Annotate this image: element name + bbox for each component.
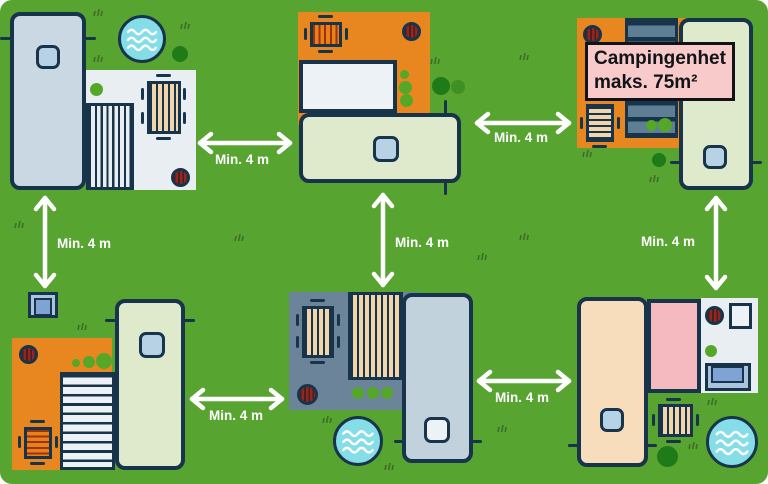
picnic-table-icon (147, 81, 181, 134)
distance-label: Min. 4 m (494, 130, 548, 145)
storage-box-inner (34, 298, 52, 316)
side-table-icon (729, 303, 752, 329)
grass-tuft-icon: ılı (497, 426, 508, 435)
caravan (10, 12, 86, 190)
wooden-deck (348, 292, 403, 380)
bush-icon (705, 345, 717, 357)
distance-label: Min. 4 m (57, 236, 111, 251)
fire-pit-icon (705, 306, 724, 325)
grass-tuft-icon: ılı (93, 10, 104, 19)
grass-tuft-icon: ılı (77, 324, 88, 333)
bush-icon (399, 81, 412, 94)
pool-icon (118, 15, 166, 63)
bush-icon (72, 359, 80, 367)
grass-tuft-icon: ılı (234, 235, 245, 244)
grass-tuft-icon: ılı (430, 58, 441, 67)
callout-label: Campingenhet maks. 75m² (585, 42, 735, 101)
caravan-hitch-mark (184, 319, 195, 322)
annex-tent (647, 299, 701, 393)
caravan-window (139, 332, 165, 358)
bush-icon (451, 80, 465, 94)
wooden-deck (86, 103, 134, 190)
callout-line2: maks. 75m² (594, 71, 726, 95)
distance-label: Min. 4 m (641, 234, 695, 249)
distance-label: Min. 4 m (395, 235, 449, 250)
distance-label: Min. 4 m (209, 408, 263, 423)
grass-tuft-icon: ılı (477, 254, 488, 263)
caravan-hitch-mark (647, 444, 657, 447)
picnic-table-icon (302, 306, 334, 358)
bush-icon (652, 153, 666, 167)
bush-icon (90, 83, 103, 96)
annex-tent (299, 60, 397, 113)
grass-tuft-icon: ılı (384, 464, 395, 473)
caravan-window (424, 417, 450, 443)
grass-tuft-icon: ılı (582, 151, 593, 160)
bush-icon (381, 387, 393, 399)
picnic-table-icon (658, 404, 693, 437)
callout-line1: Campingenhet (594, 47, 726, 71)
grass-tuft-icon: ılı (322, 417, 333, 426)
fire-pit-icon (19, 345, 38, 364)
grass-tuft-icon: ılı (519, 54, 530, 63)
bush-icon (657, 446, 678, 467)
caravan-hitch-mark (444, 100, 447, 114)
bush-icon (367, 387, 379, 399)
fire-pit-icon (171, 168, 190, 187)
grass-tuft-icon: ılı (14, 222, 25, 231)
distance-label: Min. 4 m (495, 390, 549, 405)
bush-icon (432, 77, 450, 95)
distance-arrow (370, 190, 396, 290)
caravan-hitch-mark (444, 181, 447, 195)
grass-tuft-icon: ılı (707, 399, 718, 408)
pool-icon (333, 416, 383, 466)
bush-icon (658, 118, 672, 132)
bush-icon (400, 94, 413, 107)
fire-pit-icon (402, 22, 421, 41)
grass-tuft-icon: ılı (519, 234, 530, 243)
caravan-window (36, 45, 60, 69)
distance-arrow (32, 193, 58, 291)
bush-icon (83, 356, 95, 368)
caravan-hitch-mark (472, 440, 482, 443)
lounge-furniture-inner (711, 366, 744, 383)
distance-arrow (703, 193, 729, 293)
bush-icon (646, 120, 657, 131)
distance-label: Min. 4 m (215, 152, 269, 167)
grass-tuft-icon: ılı (688, 443, 699, 452)
caravan-window (373, 136, 399, 162)
picnic-table-icon (310, 22, 342, 47)
wooden-deck (60, 372, 115, 470)
caravan-window (703, 145, 727, 169)
bush-icon (96, 353, 112, 369)
pool-icon (706, 416, 758, 468)
fire-pit-icon (297, 384, 318, 405)
caravan (577, 297, 648, 467)
picnic-table-icon (24, 427, 52, 459)
camping-units-spacing-diagram: ılı ılı ılı ılı ılı ılı ılı ılı ılı ılı … (0, 0, 768, 484)
picnic-table-icon (586, 104, 614, 142)
grass-tuft-icon: ılı (93, 56, 104, 65)
bush-icon (172, 46, 188, 62)
bush-icon (400, 70, 409, 79)
grass-tuft-icon: ılı (649, 176, 660, 185)
bush-icon (352, 387, 364, 399)
caravan-window (600, 408, 624, 432)
grass-tuft-icon: ılı (180, 23, 191, 32)
caravan-hitch-mark (752, 161, 762, 164)
caravan (115, 299, 185, 470)
